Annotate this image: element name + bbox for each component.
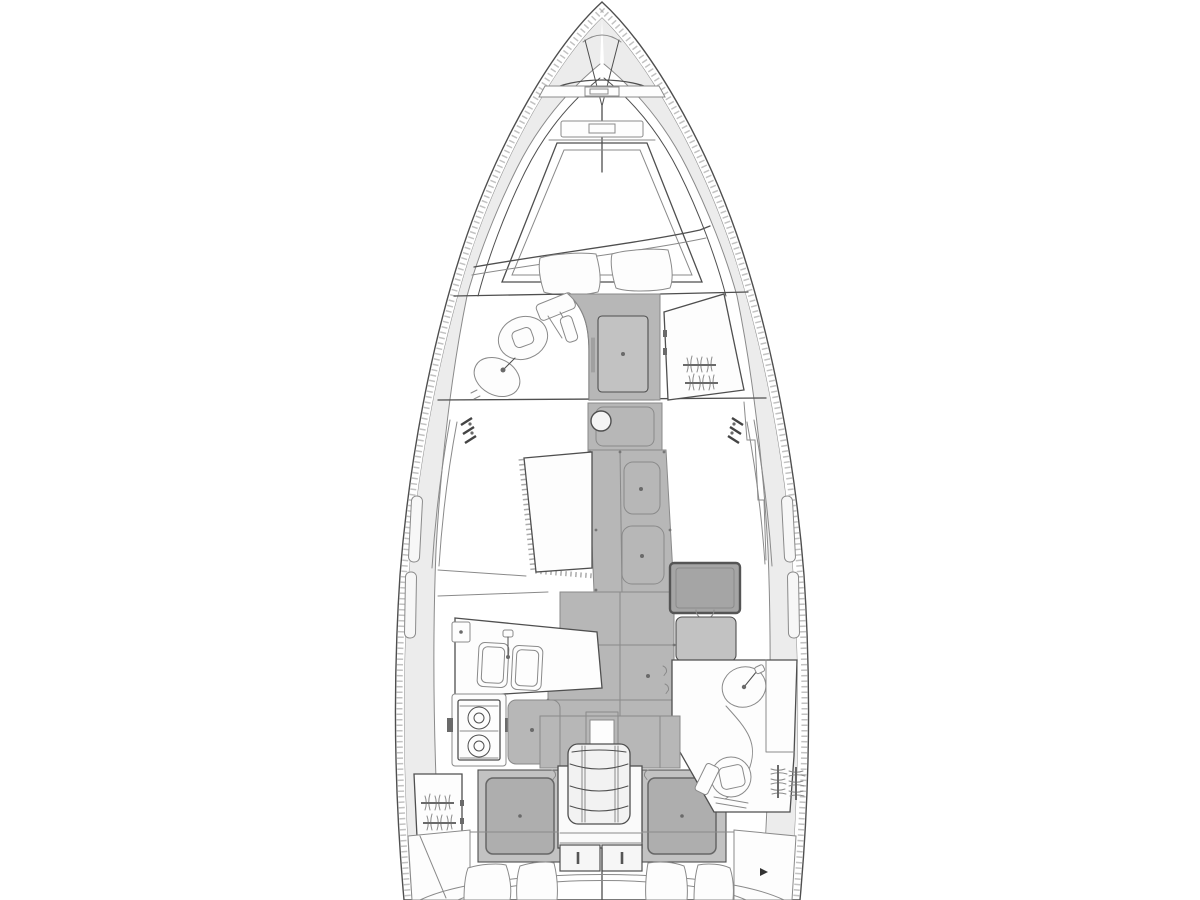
cockpit-cushion [464, 864, 511, 900]
yacht-floor-plan-drawing [0, 0, 1200, 900]
yacht-floor-plan-figure [0, 0, 1200, 900]
screenshot-canvas [0, 0, 1200, 900]
stove-icon [447, 694, 511, 766]
cockpit-cushion [694, 864, 733, 900]
nav-seat [676, 617, 736, 661]
pillow [539, 253, 600, 295]
aft-cabin-port [478, 770, 562, 862]
stern-locker-port [408, 830, 470, 900]
faucet-icon [503, 630, 513, 637]
stern-locker-starboard [734, 830, 796, 900]
foredeck-hatch [549, 121, 655, 140]
steps [568, 744, 630, 824]
cockpit-cushion [646, 862, 688, 900]
companionway-sill [590, 720, 614, 744]
mast-post [591, 411, 611, 431]
cockpit-cushion [517, 862, 558, 900]
pillow [611, 249, 672, 291]
